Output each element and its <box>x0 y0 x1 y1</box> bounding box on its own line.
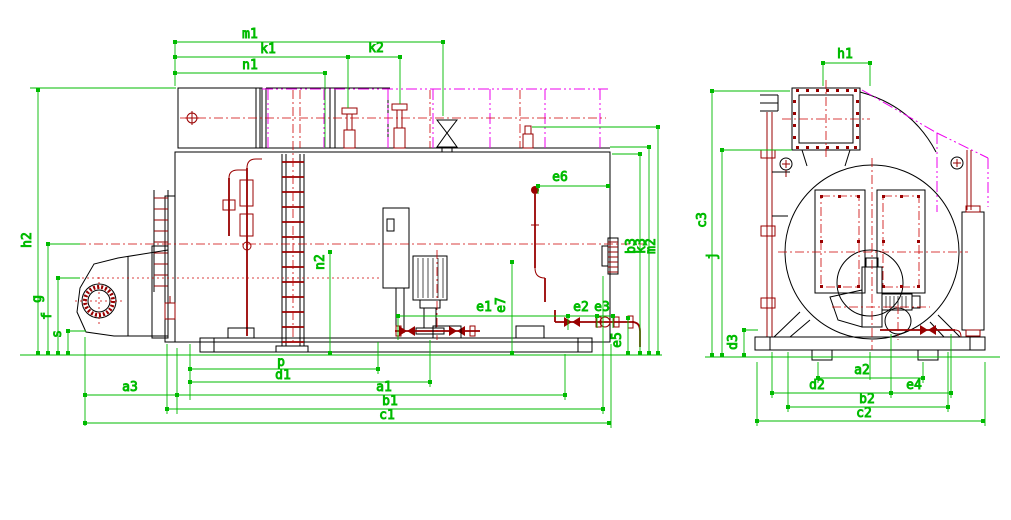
dim-label-n2: n2 <box>313 254 328 270</box>
dim-label-n1: n1 <box>242 58 258 73</box>
main-ladder <box>276 154 308 352</box>
dim-label-d2: d2 <box>809 378 825 393</box>
blowdown-end <box>880 325 961 337</box>
dim-label-e1: e1 <box>476 300 492 315</box>
boiler-shell-side <box>165 148 610 342</box>
dim-label-e4: e4 <box>906 378 922 393</box>
dim-label-k2: k2 <box>368 41 384 56</box>
dim-label-a1: a1 <box>376 380 392 395</box>
dim-label-a3: a3 <box>122 380 138 395</box>
dim-m1: m1 <box>175 27 443 116</box>
dim-label-m2: m2 <box>644 238 659 254</box>
dim-label-a2: a2 <box>854 363 870 378</box>
dim-n1: n1 <box>175 58 325 148</box>
dim-f: f <box>40 278 80 353</box>
dim-label-d1: d1 <box>275 368 291 383</box>
dim-label-e6: e6 <box>552 170 568 185</box>
dim-label-h1: h1 <box>837 47 853 62</box>
dim-label-s: s <box>50 330 65 338</box>
burner-end <box>830 258 920 334</box>
dim-h1: h1 <box>823 47 870 86</box>
gauge-piping-right <box>951 150 984 337</box>
dim-label-h2: h2 <box>20 232 35 248</box>
dim-label-c3: c3 <box>695 212 710 228</box>
front-ladder <box>154 190 168 292</box>
end-view <box>755 80 988 360</box>
dim-k2: k2 <box>348 41 400 104</box>
dim-c1: c1 <box>85 344 611 428</box>
dim-label-e2: e2 <box>573 300 589 315</box>
boiler-ga-drawing: m1 k1 k2 n1 n2 h2 g f s e6 e1 e7 e2 e3 e… <box>0 0 1011 520</box>
dim-label-e7: e7 <box>494 297 509 313</box>
dim-b1: b1 <box>167 276 603 414</box>
platform-frame <box>266 88 533 152</box>
dim-label-m1: m1 <box>242 27 258 42</box>
dim-label-b1: b1 <box>382 394 398 409</box>
dim-label-b2: b2 <box>859 392 875 407</box>
dim-label-k1: k1 <box>260 42 276 57</box>
platform-valve-stems <box>342 104 533 148</box>
drawing-canvas: m1 k1 k2 n1 n2 h2 g f s e6 e1 e7 e2 e3 e… <box>0 0 1011 520</box>
dim-label-f: f <box>40 312 55 320</box>
dim-label-g: g <box>30 295 45 303</box>
dim-d3: d3 <box>726 330 758 355</box>
side-view <box>60 88 645 352</box>
dim-a3: a3 <box>85 337 177 426</box>
dim-c3: c3 <box>695 91 790 355</box>
dim-s: s <box>50 330 86 353</box>
dim-e7: e7 <box>494 262 512 353</box>
dim-e4: e4 <box>891 334 951 398</box>
water-level-column <box>223 159 262 336</box>
burner-assembly <box>75 246 175 338</box>
tube-panels <box>815 190 925 293</box>
gauge-piping-left <box>761 112 792 337</box>
handrail-phantom-side <box>262 89 608 148</box>
dim-e2: e2 <box>568 300 597 330</box>
dim-d2: d2 <box>772 334 891 398</box>
dim-label-c2: c2 <box>856 406 872 421</box>
dim-j: j <box>705 150 792 355</box>
dim-label-j: j <box>705 252 720 260</box>
dim-label-e3: e3 <box>594 300 610 315</box>
feed-pump <box>395 256 480 336</box>
dimension-layer-side: m1 k1 k2 n1 n2 h2 g f s e6 e1 e7 e2 e3 e… <box>20 27 662 428</box>
dim-label-d3: d3 <box>726 334 741 350</box>
dimension-layer-end: h1 c3 j d3 a2 d2 e4 b2 c2 <box>695 47 1000 426</box>
dim-e6: e6 <box>538 170 610 194</box>
dim-a1: a1 <box>177 354 565 400</box>
dim-label-c1: c1 <box>379 408 395 423</box>
dim-d1: d1 <box>190 340 430 387</box>
dim-label-e5: e5 <box>610 332 625 348</box>
